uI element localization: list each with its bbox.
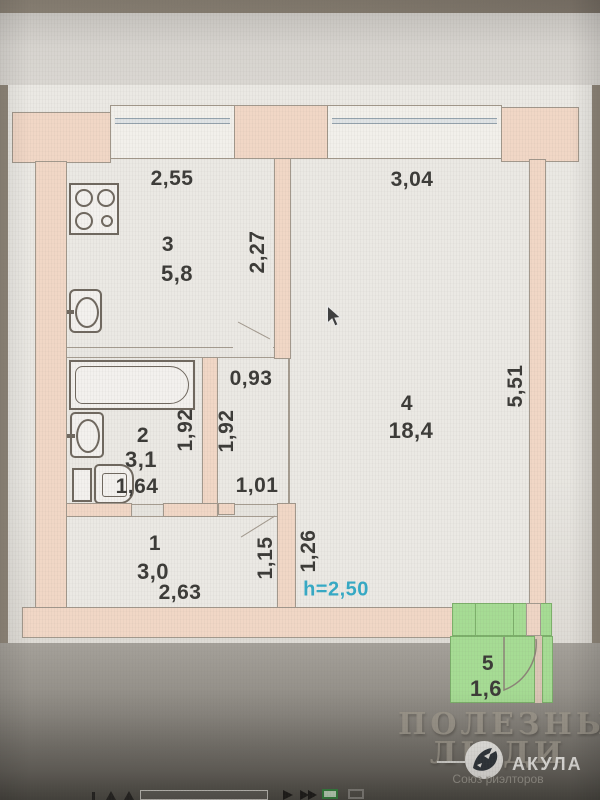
wall-kitchen-living <box>274 158 291 359</box>
bathtub-inner <box>75 366 189 404</box>
dim-hall-opening: 1,15 <box>254 537 278 580</box>
sink-tap <box>66 310 74 314</box>
wall-corridor-bottom <box>218 503 235 515</box>
stove-icon <box>69 183 119 235</box>
toolbar-strip <box>0 788 600 800</box>
room-hallway-area: 3,0 <box>137 559 169 585</box>
dim-kitchen-width: 2,55 <box>151 167 194 191</box>
balcony-window-divider <box>475 604 476 635</box>
dim-kitchen-depth: 2,27 <box>246 231 270 274</box>
wall-hall-living <box>277 503 296 608</box>
dim-corridor-width: 0,93 <box>230 367 273 391</box>
balcony-door-arc-icon <box>500 636 540 694</box>
stove-burner <box>75 212 93 230</box>
wall-bottom <box>22 607 456 638</box>
room-hallway-number: 1 <box>149 532 161 556</box>
bathtub-icon <box>69 360 195 410</box>
logo-divider-line <box>437 761 465 763</box>
balcony-wall-pier <box>526 603 541 636</box>
dim-bath-width: 1,64 <box>116 475 159 499</box>
washbasin-icon <box>70 412 104 458</box>
toolbar-input-box[interactable] <box>140 790 268 800</box>
photo-upper-gray <box>0 13 600 85</box>
dim-corridor-depth: 1,92 <box>215 410 239 453</box>
toolbar-copy-icon[interactable] <box>322 789 338 799</box>
room-living-area: 18,4 <box>389 418 434 444</box>
dim-living-width: 3,04 <box>391 168 434 192</box>
door-opening-kitchen <box>233 341 273 353</box>
sink-basin <box>75 297 99 328</box>
balcony-window-divider <box>513 604 514 635</box>
ceiling-height-label: h=2,50 <box>303 579 369 602</box>
wall-top-left-block <box>12 112 111 163</box>
room-balcony-number: 5 <box>482 652 494 676</box>
wall-bath-bottom-left <box>66 503 132 517</box>
dim-living-wall: 1,26 <box>297 530 321 573</box>
mouse-cursor-icon <box>326 305 344 330</box>
dim-living-depth: 5,51 <box>504 365 528 408</box>
washbasin-bowl <box>76 419 100 453</box>
room-bathroom-number: 2 <box>137 424 149 448</box>
kitchen-sink-icon <box>69 289 102 333</box>
toolbar-pointer-icon[interactable] <box>124 791 134 800</box>
room-living <box>289 157 530 608</box>
room-kitchen-area: 5,8 <box>161 261 193 287</box>
wall-left <box>35 161 67 608</box>
window-kitchen <box>110 105 235 159</box>
window-glass-line <box>115 118 230 124</box>
photo-of-floorplan-screen: 2,55 3,04 2,27 0,93 1,92 1,92 1,64 1,01 … <box>0 0 600 800</box>
toolbar-file-icon[interactable] <box>348 789 364 799</box>
room-bathroom-area: 3,1 <box>125 447 157 473</box>
stove-burner <box>97 189 115 207</box>
wall-bath-bottom-right <box>163 503 218 517</box>
wall-top-right-block <box>501 107 579 162</box>
toilet-tank <box>72 468 92 502</box>
room-balcony-area: 1,6 <box>470 676 502 702</box>
stove-burner <box>101 215 113 227</box>
photo-top-dark-bar <box>0 0 600 13</box>
balcony-rail <box>542 636 553 703</box>
window-glass-line <box>332 118 497 124</box>
logo-subtitle-text: Союз риэлторов <box>428 772 568 786</box>
room-living-number: 4 <box>401 392 413 416</box>
wall-top-pier <box>234 105 328 159</box>
toolbar-play-icon[interactable] <box>283 790 293 800</box>
dim-bath-depth: 1,92 <box>174 409 198 452</box>
toolbar-next-icon[interactable] <box>308 790 317 800</box>
stove-burner <box>75 189 93 207</box>
room-kitchen-number: 3 <box>162 233 174 257</box>
wall-right <box>529 159 546 608</box>
dim-corridor-opening: 1,01 <box>236 474 279 498</box>
washbasin-tap <box>67 434 75 438</box>
toolbar-pointer-icon[interactable] <box>106 791 116 800</box>
toolbar-mark-icon[interactable] <box>92 792 95 800</box>
window-living <box>327 105 502 159</box>
